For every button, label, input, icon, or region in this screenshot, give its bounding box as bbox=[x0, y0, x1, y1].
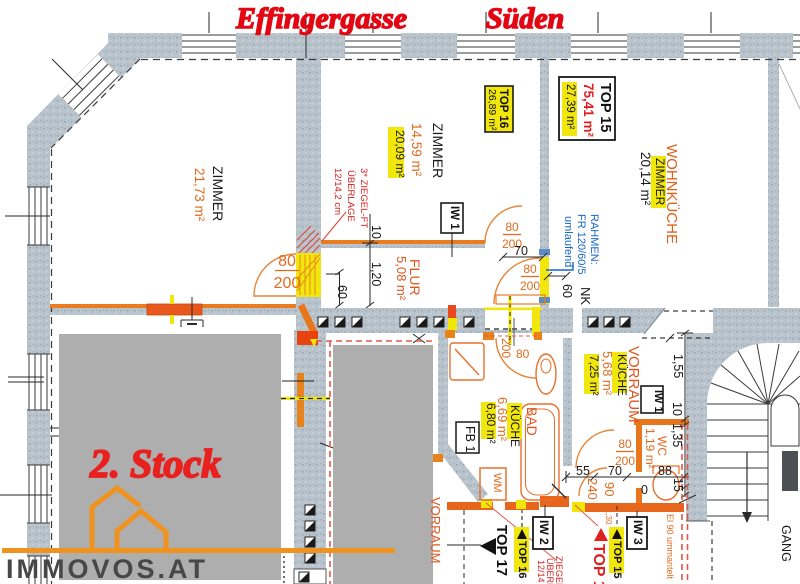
svg-text:6,80 m²: 6,80 m² bbox=[484, 403, 498, 444]
svg-text:7,25 m²: 7,25 m² bbox=[587, 355, 601, 396]
svg-text:21,73 m²: 21,73 m² bbox=[192, 168, 207, 222]
svg-text:1,20: 1,20 bbox=[369, 262, 383, 286]
svg-text:WM: WM bbox=[491, 473, 503, 493]
svg-text:0: 0 bbox=[641, 483, 648, 497]
svg-text:ZIMMER: ZIMMER bbox=[653, 158, 667, 206]
svg-text:80: 80 bbox=[618, 437, 632, 451]
svg-text:200: 200 bbox=[274, 275, 301, 292]
svg-text:1,55: 1,55 bbox=[671, 354, 685, 378]
svg-text:90: 90 bbox=[602, 482, 617, 496]
svg-text:IW 2: IW 2 bbox=[537, 520, 551, 545]
svg-text:20,09 m²: 20,09 m² bbox=[393, 130, 407, 177]
svg-text:10: 10 bbox=[670, 402, 684, 416]
svg-text:ÜBERLAGE: ÜBERLAGE bbox=[345, 170, 356, 222]
svg-text:12/14: 12/14 bbox=[536, 560, 546, 583]
svg-text:KÜCHE: KÜCHE bbox=[615, 354, 629, 396]
svg-text:70: 70 bbox=[514, 244, 528, 258]
svg-text:15: 15 bbox=[671, 478, 685, 492]
svg-text:70: 70 bbox=[608, 464, 622, 478]
svg-text:Effingergasse: Effingergasse bbox=[235, 2, 407, 35]
svg-text:FR 120/60/5: FR 120/60/5 bbox=[575, 214, 587, 275]
svg-text:75,41 m²: 75,41 m² bbox=[581, 83, 596, 138]
svg-text:80: 80 bbox=[516, 347, 530, 361]
svg-text:1,19 m²: 1,19 m² bbox=[643, 428, 657, 469]
svg-text:55: 55 bbox=[576, 464, 590, 478]
svg-text:GANG: GANG bbox=[779, 525, 793, 562]
svg-text:60: 60 bbox=[335, 285, 349, 299]
svg-text:200: 200 bbox=[499, 338, 513, 358]
svg-text:20,14 m²: 20,14 m² bbox=[638, 152, 653, 206]
svg-text:FB 1: FB 1 bbox=[463, 426, 477, 452]
svg-text:TOP 15: TOP 15 bbox=[597, 83, 613, 132]
svg-text:Süden: Süden bbox=[486, 2, 564, 35]
svg-text:2. Stock: 2. Stock bbox=[89, 441, 221, 486]
svg-text:TOP 15: TOP 15 bbox=[590, 544, 607, 584]
svg-text:80: 80 bbox=[278, 253, 296, 270]
svg-text:14,59 m²: 14,59 m² bbox=[409, 123, 424, 177]
svg-text:umlaufend: umlaufend bbox=[562, 216, 574, 267]
svg-text:5,08 m²: 5,08 m² bbox=[394, 256, 409, 301]
svg-text:IW 3: IW 3 bbox=[631, 520, 645, 545]
svg-text:26,89 m²: 26,89 m² bbox=[486, 89, 498, 131]
svg-text:1,35: 1,35 bbox=[670, 423, 684, 447]
svg-text:IW 1: IW 1 bbox=[448, 206, 460, 230]
svg-text:27,39 m²: 27,39 m² bbox=[564, 84, 576, 130]
svg-text:200: 200 bbox=[520, 279, 540, 293]
svg-text:ZIMMER: ZIMMER bbox=[210, 166, 226, 221]
svg-text:IW 1: IW 1 bbox=[652, 390, 664, 413]
svg-text:IMMOVOS.AT: IMMOVOS.AT bbox=[6, 554, 208, 584]
svg-text:TOP 15: TOP 15 bbox=[611, 541, 623, 579]
svg-text:12/14,2 cm: 12/14,2 cm bbox=[332, 168, 343, 215]
svg-text:3* ZIEGEL-FT: 3* ZIEGEL-FT bbox=[358, 168, 369, 228]
svg-text:88: 88 bbox=[658, 464, 672, 478]
svg-text:80: 80 bbox=[505, 220, 519, 234]
svg-text:El 90 ummantelt: El 90 ummantelt bbox=[665, 514, 675, 580]
svg-text:BAD: BAD bbox=[524, 407, 540, 436]
svg-text:RAHMEN:: RAHMEN: bbox=[588, 214, 600, 265]
svg-text:ZIMMER: ZIMMER bbox=[430, 123, 446, 178]
svg-text:TOP 16: TOP 16 bbox=[516, 541, 528, 579]
svg-text:10: 10 bbox=[369, 225, 383, 239]
svg-text:VORRAUM: VORRAUM bbox=[428, 497, 443, 563]
svg-text:60: 60 bbox=[560, 284, 574, 298]
svg-text:⌀1,30: ⌀1,30 bbox=[604, 504, 613, 525]
svg-text:NK: NK bbox=[578, 287, 593, 305]
svg-text:240: 240 bbox=[585, 478, 600, 500]
svg-text:80: 80 bbox=[523, 262, 537, 276]
